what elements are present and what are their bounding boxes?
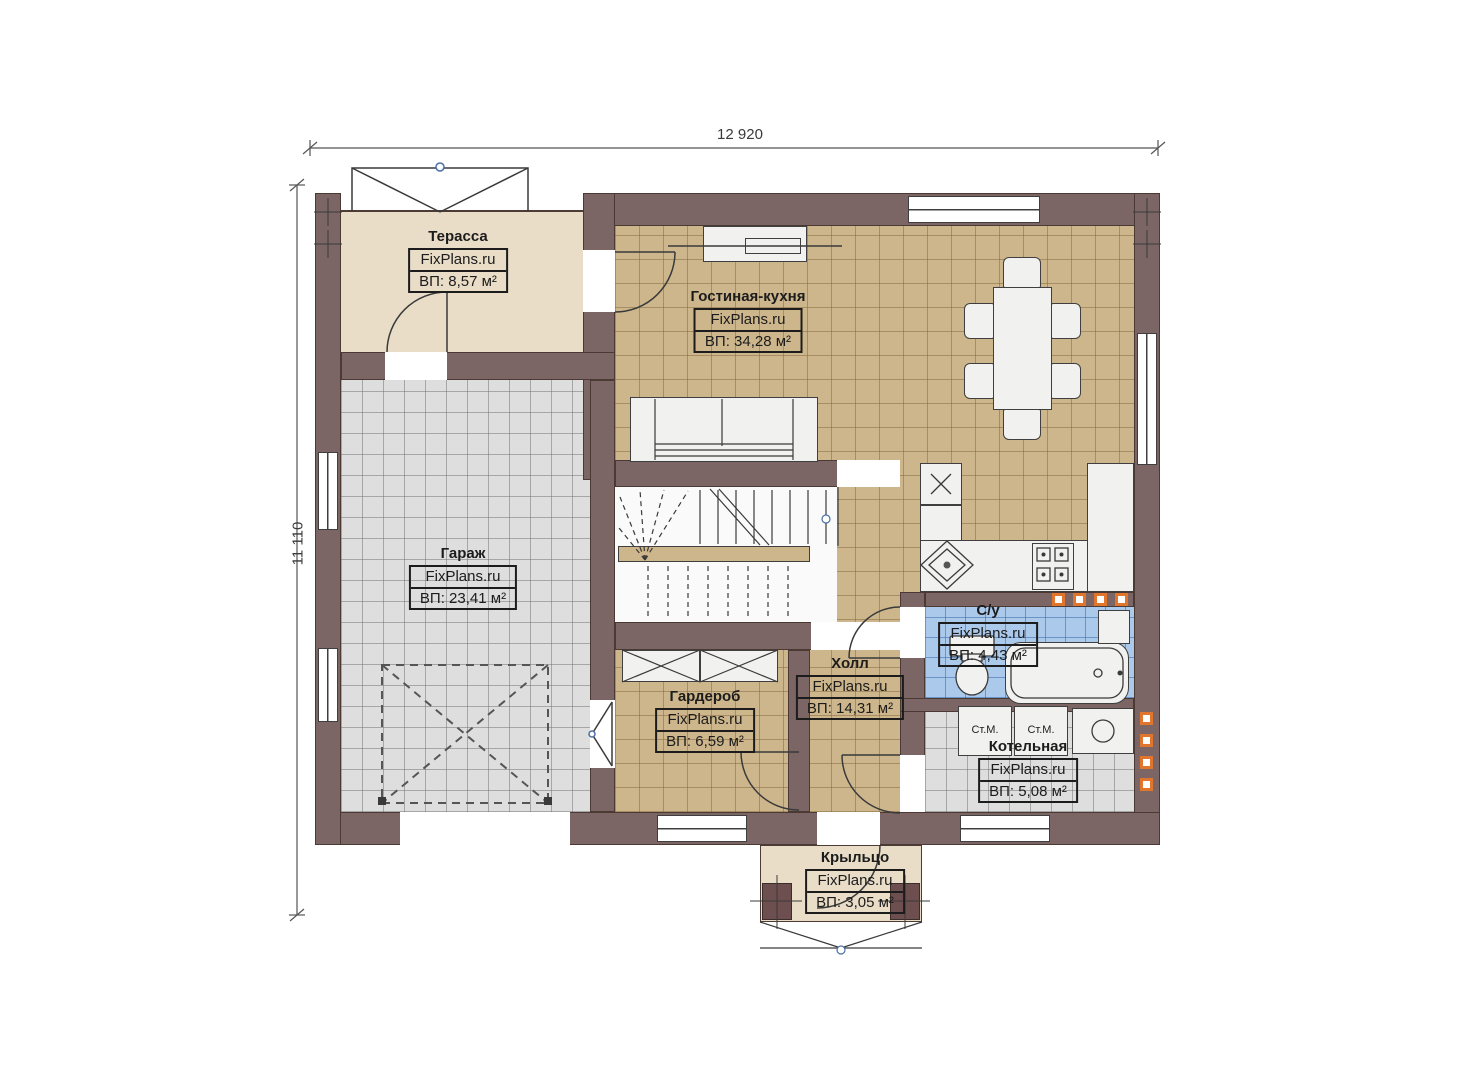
brand-watermark: FixPlans.ru — [411, 567, 515, 588]
room-label-bathroom: С/у FixPlans.ru ВП: 4,43 м² — [938, 602, 1038, 667]
garage-parking-mark — [378, 665, 552, 805]
washer-1-label: Ст.М. — [958, 724, 1012, 736]
roof-gable-mark — [352, 163, 528, 212]
room-label-porch: Крыльцо FixPlans.ru ВП: 3,05 м² — [805, 849, 905, 914]
brand-watermark: FixPlans.ru — [798, 677, 902, 698]
room-label-box: FixPlans.ru ВП: 14,31 м² — [796, 675, 904, 720]
room-area: ВП: 14,31 м² — [798, 699, 902, 718]
brand-watermark: FixPlans.ru — [657, 710, 753, 731]
room-area: ВП: 3,05 м² — [807, 893, 903, 912]
room-label-garage: Гараж FixPlans.ru ВП: 23,41 м² — [409, 545, 517, 610]
room-label-box: FixPlans.ru ВП: 8,57 м² — [408, 248, 508, 293]
radiator-boiler-2 — [1140, 734, 1153, 747]
kitchen-fixtures — [921, 474, 1068, 589]
room-name: Терасса — [408, 228, 508, 245]
stairs — [619, 487, 838, 620]
brand-watermark: FixPlans.ru — [980, 760, 1076, 781]
room-label-wardrobe: Гардероб FixPlans.ru ВП: 6,59 м² — [655, 688, 755, 753]
dimension-height-label: 11 110 — [290, 504, 307, 584]
room-label-terrace: Терасса FixPlans.ru ВП: 8,57 м² — [408, 228, 508, 293]
room-name: Гардероб — [655, 688, 755, 705]
brand-watermark: FixPlans.ru — [940, 624, 1036, 645]
room-area: ВП: 4,43 м² — [940, 646, 1036, 665]
room-area: ВП: 34,28 м² — [696, 332, 800, 351]
room-label-living-kitchen: Гостиная-кухня FixPlans.ru ВП: 34,28 м² — [691, 288, 806, 353]
brand-watermark: FixPlans.ru — [807, 871, 903, 892]
sofa-detail — [655, 399, 793, 460]
room-label-hall: Холл FixPlans.ru ВП: 14,31 м² — [796, 655, 904, 720]
radiator-boiler-4 — [1140, 778, 1153, 791]
brand-watermark: FixPlans.ru — [696, 310, 800, 331]
radiator-kitchen-3 — [1094, 593, 1107, 606]
radiator-boiler-3 — [1140, 756, 1153, 769]
room-name: Котельная — [978, 738, 1078, 755]
room-area: ВП: 8,57 м² — [410, 272, 506, 291]
room-name: Крыльцо — [805, 849, 905, 866]
room-name: Гараж — [409, 545, 517, 562]
room-name: Гостиная-кухня — [691, 288, 806, 305]
radiator-kitchen-2 — [1073, 593, 1086, 606]
dimension-width-label: 12 920 — [700, 126, 780, 143]
radiator-kitchen-4 — [1115, 593, 1128, 606]
radiator-boiler-1 — [1140, 712, 1153, 725]
room-area: ВП: 23,41 м² — [411, 589, 515, 608]
radiator-kitchen-1 — [1052, 593, 1065, 606]
room-label-box: FixPlans.ru ВП: 3,05 м² — [805, 869, 905, 914]
room-name: С/у — [938, 602, 1038, 619]
brand-watermark: FixPlans.ru — [410, 250, 506, 271]
closet-x-marks — [622, 650, 778, 682]
room-label-box: FixPlans.ru ВП: 23,41 м² — [409, 565, 517, 610]
room-label-box: FixPlans.ru ВП: 5,08 м² — [978, 758, 1078, 803]
plan-linework — [0, 0, 1473, 1080]
room-area: ВП: 6,59 м² — [657, 732, 753, 751]
washer-2-label: Ст.М. — [1014, 724, 1068, 736]
room-label-box: FixPlans.ru ВП: 34,28 м² — [694, 308, 802, 353]
room-area: ВП: 5,08 м² — [980, 782, 1076, 801]
room-label-box: FixPlans.ru ВП: 6,59 м² — [655, 708, 755, 753]
room-name: Холл — [796, 655, 904, 672]
floor-plan-canvas: Ст.М. Ст.М. — [0, 0, 1473, 1080]
room-label-boiler: Котельная FixPlans.ru ВП: 5,08 м² — [978, 738, 1078, 803]
room-label-box: FixPlans.ru ВП: 4,43 м² — [938, 622, 1038, 667]
